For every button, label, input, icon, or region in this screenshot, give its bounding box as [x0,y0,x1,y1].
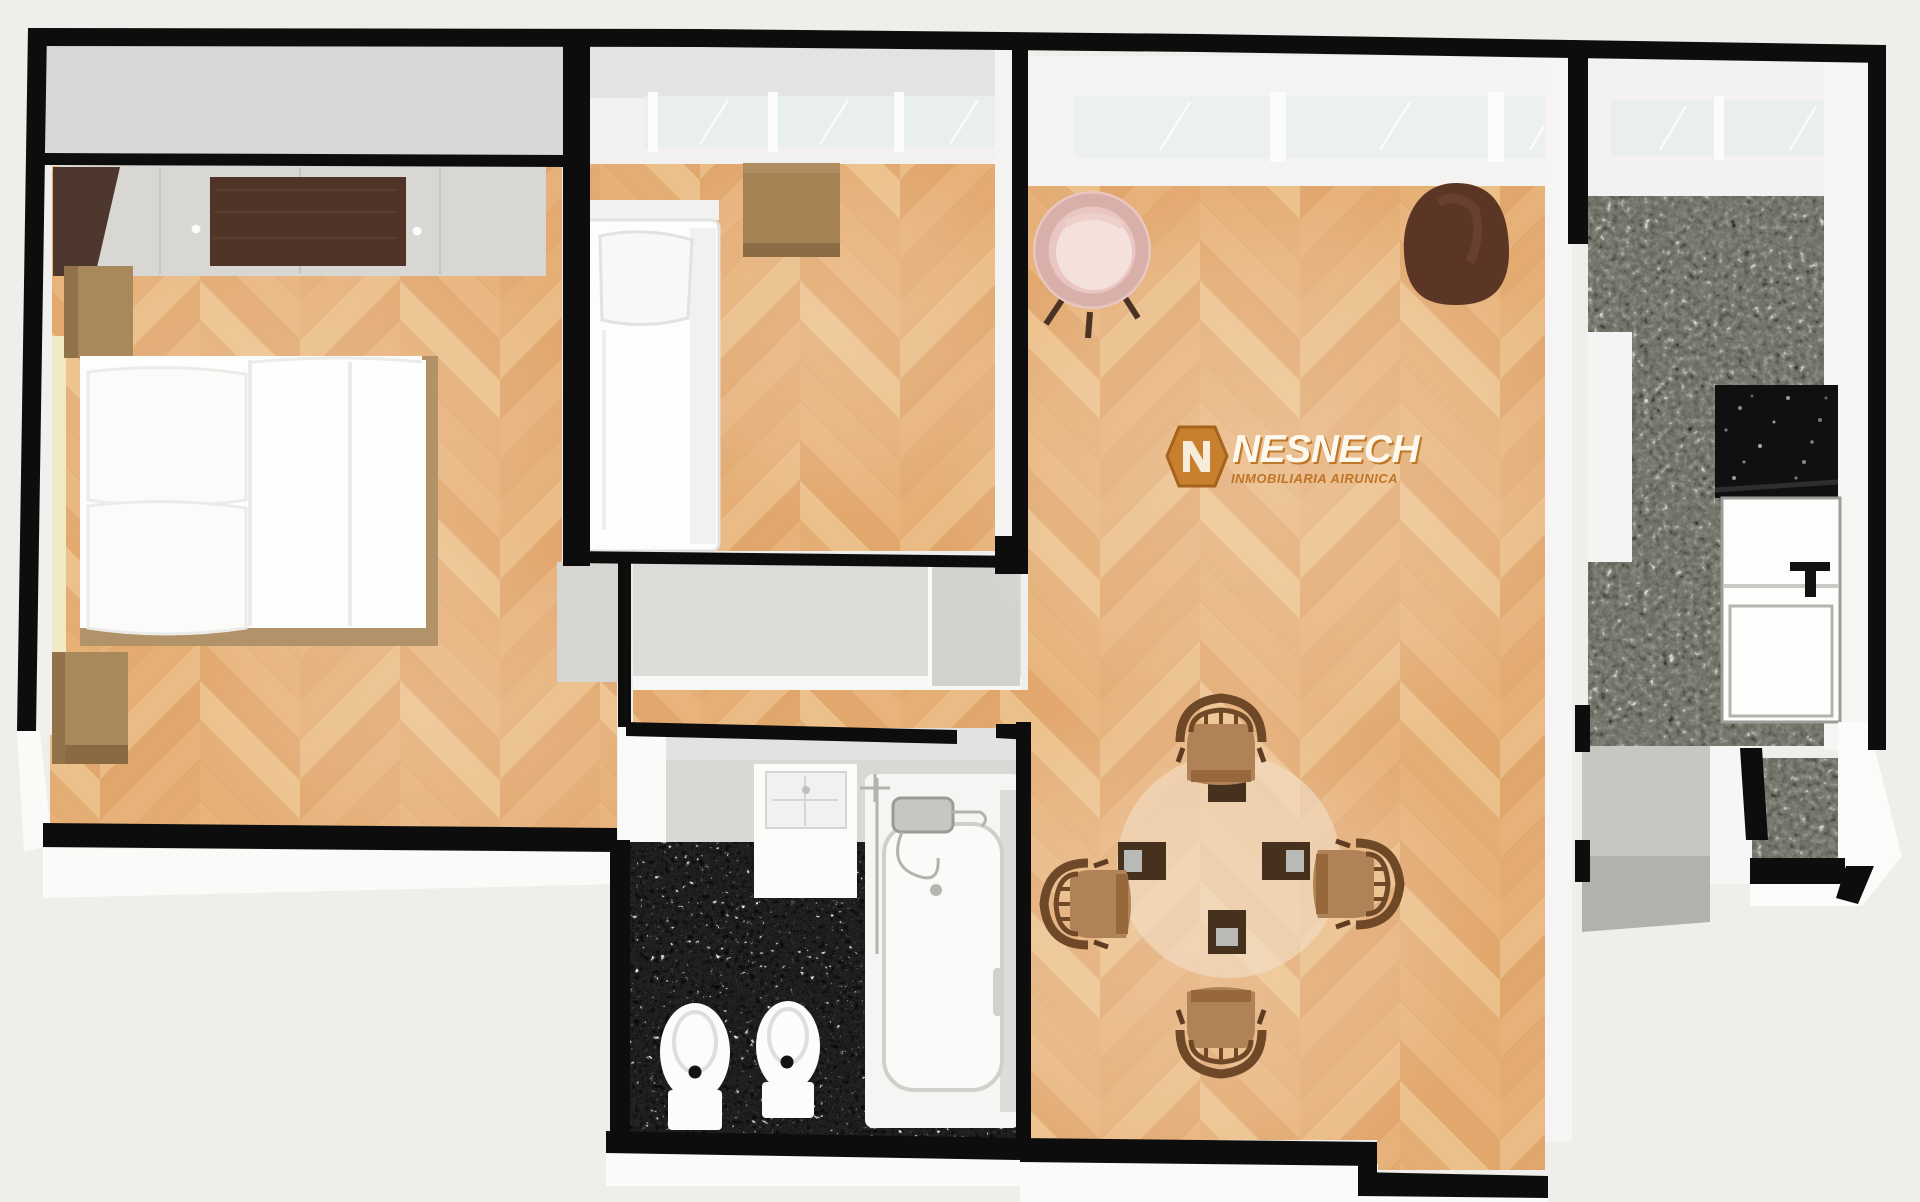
svg-text:NESNECH: NESNECH [1232,428,1421,471]
svg-text:INMOBILIARIA AIRUNICA: INMOBILIARIA AIRUNICA [1231,471,1398,486]
